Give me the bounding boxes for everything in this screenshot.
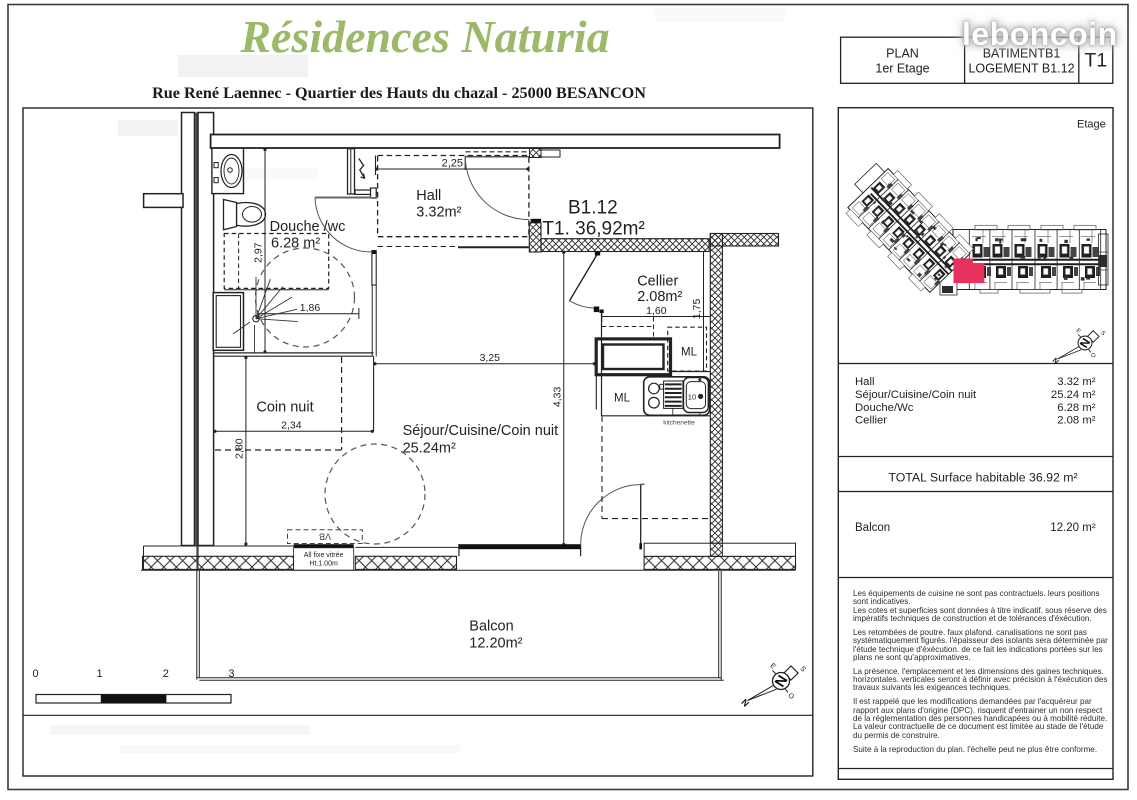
svg-text:1: 1 xyxy=(97,668,103,680)
svg-text:VB: VB xyxy=(319,532,331,542)
svg-text:2,25: 2,25 xyxy=(442,157,463,169)
svg-text:2,80: 2,80 xyxy=(233,438,245,459)
svg-text:2,97: 2,97 xyxy=(253,242,265,263)
svg-text:Séjour/Cuisine/Coin nuit: Séjour/Cuisine/Coin nuit xyxy=(403,423,559,439)
svg-text:0: 0 xyxy=(32,668,38,680)
svg-text:E: E xyxy=(1074,328,1081,335)
svg-text:S: S xyxy=(1099,330,1106,337)
svg-text:B1.12: B1.12 xyxy=(568,198,618,219)
svg-text:3: 3 xyxy=(228,668,234,680)
svg-text:6.28 m²: 6.28 m² xyxy=(271,236,320,252)
svg-text:2: 2 xyxy=(163,668,169,680)
svg-text:PLAN: PLAN xyxy=(886,47,919,61)
svg-text:12.20 m²: 12.20 m² xyxy=(1050,522,1096,534)
svg-text:3.32 m²: 3.32 m² xyxy=(1057,376,1096,388)
svg-text:4,33: 4,33 xyxy=(551,387,563,408)
svg-text:Hall: Hall xyxy=(416,188,441,204)
svg-text:N: N xyxy=(739,697,751,709)
svg-text:2.08m²: 2.08m² xyxy=(637,289,682,305)
svg-text:3,25: 3,25 xyxy=(480,352,501,364)
svg-text:LOGEMENT B1.12: LOGEMENT B1.12 xyxy=(968,62,1074,76)
svg-text:All fixe vitrée: All fixe vitrée xyxy=(304,552,344,559)
svg-text:Ht.1.00m: Ht.1.00m xyxy=(309,561,338,568)
svg-text:1,60: 1,60 xyxy=(646,305,667,317)
svg-text:12.20m²: 12.20m² xyxy=(469,635,522,651)
svg-text:Hall: Hall xyxy=(855,376,874,388)
svg-text:O: O xyxy=(786,692,795,701)
svg-text:Balcon: Balcon xyxy=(469,619,513,635)
svg-text:Coin nuit: Coin nuit xyxy=(256,400,313,416)
svg-text:Cellier: Cellier xyxy=(855,415,887,427)
svg-text:1,86: 1,86 xyxy=(300,302,321,314)
svg-text:TOTAL Surface habitable 36.92: TOTAL Surface habitable 36.92 m² xyxy=(888,471,1077,485)
svg-text:Etage: Etage xyxy=(1077,119,1106,131)
svg-text:10: 10 xyxy=(688,393,696,402)
svg-text:S: S xyxy=(798,665,806,673)
svg-text:ML: ML xyxy=(681,347,698,359)
svg-text:Séjour/Cuisine/Coin nuit: Séjour/Cuisine/Coin nuit xyxy=(855,389,977,401)
svg-text:Cellier: Cellier xyxy=(637,274,678,290)
svg-text:25.24m²: 25.24m² xyxy=(403,440,456,456)
svg-text:3.32m²: 3.32m² xyxy=(416,205,461,221)
svg-text:1,75: 1,75 xyxy=(691,299,703,320)
svg-text:E: E xyxy=(768,662,776,670)
svg-text:2,34: 2,34 xyxy=(281,420,302,432)
svg-text:2.08 m²: 2.08 m² xyxy=(1057,415,1096,427)
svg-text:N: N xyxy=(1051,356,1061,366)
svg-text:O: O xyxy=(1089,352,1097,360)
svg-text:kitchenette: kitchenette xyxy=(663,419,695,426)
svg-text:25.24 m²: 25.24 m² xyxy=(1051,389,1096,401)
svg-text:Douche /wc: Douche /wc xyxy=(270,219,346,235)
svg-text:ML: ML xyxy=(614,393,631,405)
svg-text:1er Etage: 1er Etage xyxy=(875,62,929,76)
svg-text:Balcon: Balcon xyxy=(855,522,890,534)
svg-text:T1. 36,92m²: T1. 36,92m² xyxy=(542,219,644,240)
svg-text:6.28 m²: 6.28 m² xyxy=(1057,402,1096,414)
svg-text:Douche/Wc: Douche/Wc xyxy=(855,402,914,414)
